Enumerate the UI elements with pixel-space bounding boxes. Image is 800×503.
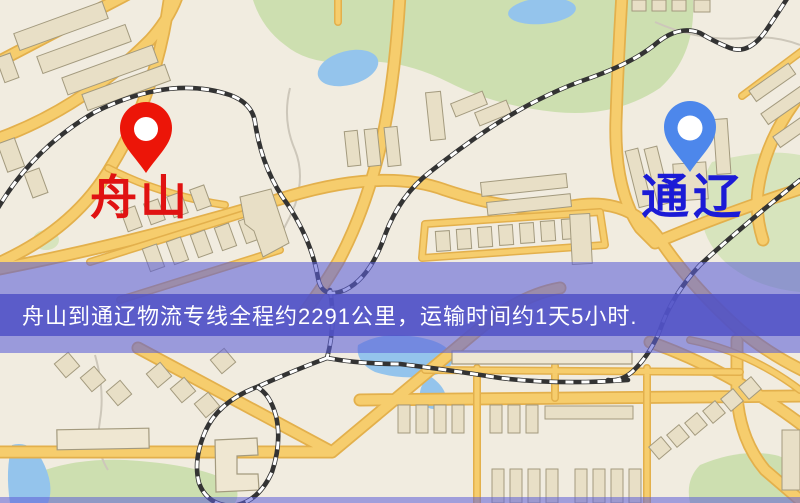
map-canvas <box>0 0 800 503</box>
logistics-map-screenshot: 舟山 通辽 舟山到通辽物流专线全程约2291公里，运输时间约1天5小时. <box>0 0 800 503</box>
origin-pin[interactable] <box>120 102 172 173</box>
route-info-text: 舟山到通辽物流专线全程约2291公里，运输时间约1天5小时. <box>22 299 638 331</box>
origin-pin-hole <box>134 117 158 141</box>
destination-pin[interactable] <box>664 101 716 172</box>
route-info-band: 舟山到通辽物流专线全程约2291公里，运输时间约1天5小时. <box>0 294 800 336</box>
bottom-tint-strip <box>0 497 800 503</box>
route-info-banner: 舟山到通辽物流专线全程约2291公里，运输时间约1天5小时. <box>0 262 800 353</box>
destination-pin-hole <box>678 116 703 141</box>
